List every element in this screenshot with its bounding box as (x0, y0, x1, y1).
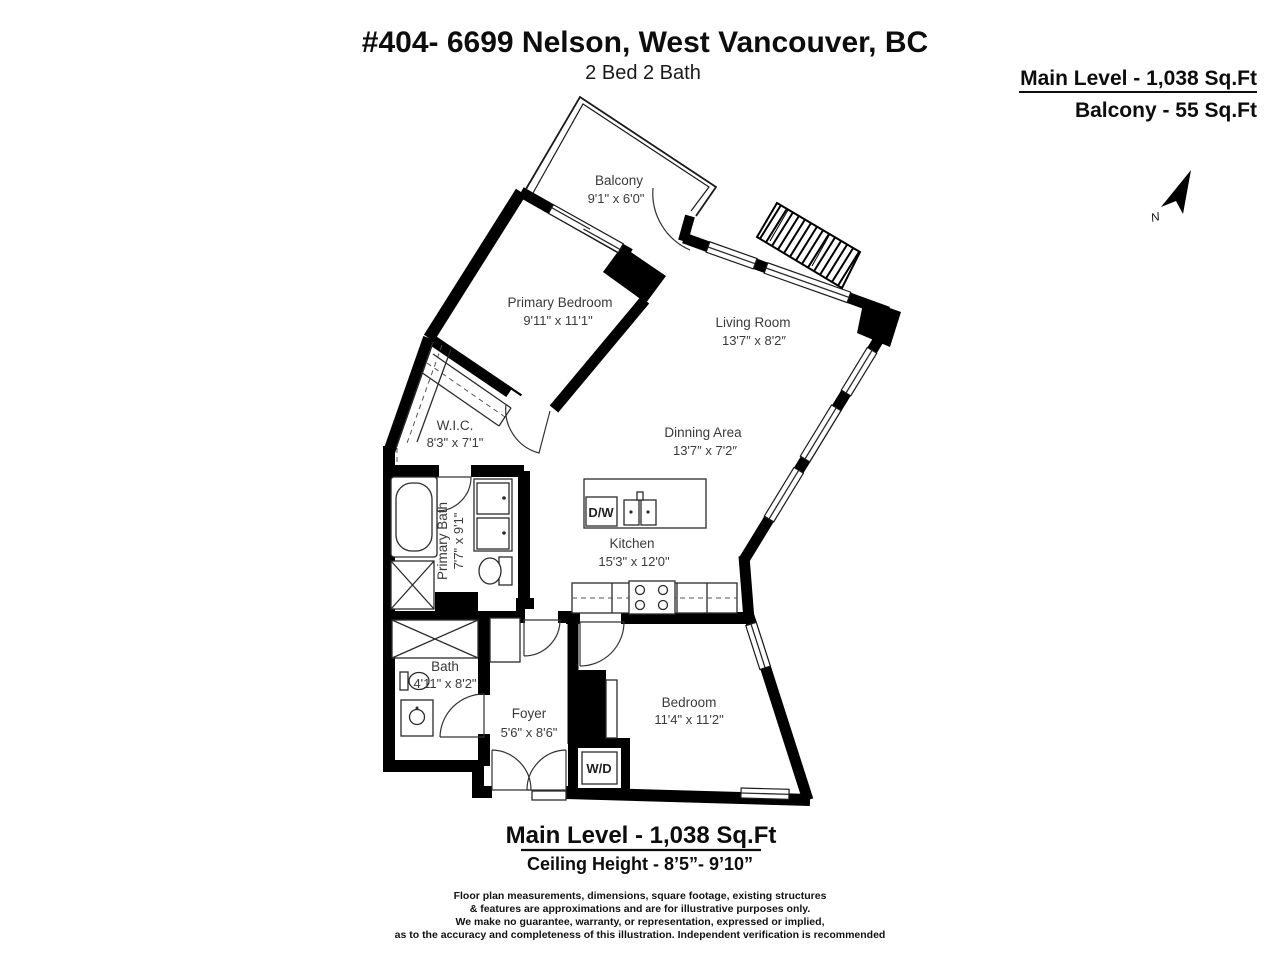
disclaimer-line-2: & features are approximations and are fo… (470, 903, 811, 915)
room-label-living-room: Living Room (715, 315, 790, 330)
room-dims-bedroom: 11'4" x 11'2" (654, 712, 724, 727)
room-label-foyer: Foyer (512, 706, 547, 721)
main-level-area: Main Level - 1,038 Sq.Ft (1020, 67, 1257, 90)
balcony-area: Balcony - 55 Sq.Ft (1075, 99, 1257, 122)
page-subtitle: 2 Bed 2 Bath (585, 62, 701, 84)
room-dims-bath: 4'11" x 8'2" (413, 676, 476, 691)
stove-icon (629, 581, 675, 614)
room-dims-dinning-area: 13'7″ x 7'2″ (673, 443, 737, 458)
disclaimer-line-3: We make no guarantee, warranty, or repre… (456, 916, 825, 928)
room-dims-wic: 8'3" x 7'1" (427, 435, 484, 450)
room-dims-primary-bedroom: 9'11" x 11'1" (523, 313, 593, 328)
faucet-icon (637, 492, 643, 500)
washer-dryer-label: W/D (586, 761, 611, 776)
room-dims-primary-bath: 7'7" x 9'1" (451, 512, 466, 569)
room-dims-foyer: 5'6" x 8'6" (501, 725, 558, 740)
footer-ceiling-height: Ceiling Height - 8’5”- 9’10” (527, 854, 753, 874)
disclaimer-line-4: as to the accuracy and completeness of t… (395, 929, 886, 941)
room-label-kitchen: Kitchen (609, 536, 654, 551)
shower-icon (391, 561, 434, 609)
floorplan-canvas: #404- 6699 Nelson, West Vancouver, BC 2 … (0, 0, 1280, 960)
room-label-primary-bath: Primary Bath (435, 502, 450, 580)
shower-icon (392, 620, 478, 658)
bedroom-closet (606, 680, 617, 738)
footer-main-level: Main Level - 1,038 Sq.Ft (506, 822, 777, 849)
foyer-closet (490, 618, 520, 662)
room-dims-balcony: 9'1" x 6'0" (588, 191, 645, 206)
toilet-icon (479, 557, 512, 585)
dishwasher-label: D/W (588, 505, 614, 520)
room-dims-living-room: 13'7″ x 8'2″ (722, 333, 786, 348)
room-dims-kitchen: 15'3" x 12'0" (598, 554, 670, 569)
room-label-bedroom: Bedroom (662, 695, 717, 710)
floorplan-page: #404- 6699 Nelson, West Vancouver, BC 2 … (0, 0, 1280, 960)
room-label-wic: W.I.C. (437, 418, 474, 433)
page-title: #404- 6699 Nelson, West Vancouver, BC (362, 26, 928, 59)
double-vanity-icon (474, 479, 512, 551)
room-label-balcony: Balcony (595, 173, 643, 188)
room-label-primary-bedroom: Primary Bedroom (507, 295, 612, 310)
disclaimer-line-1: Floor plan measurements, dimensions, squ… (454, 890, 827, 902)
room-label-bath: Bath (431, 659, 459, 674)
sink-icon (401, 700, 433, 736)
primary-bath-label-group: Primary Bath 7'7" x 9'1" (435, 502, 466, 580)
kitchen-island (584, 479, 706, 528)
room-label-dinning-area: Dinning Area (664, 425, 742, 440)
entry-threshold (532, 791, 566, 800)
kitchen-counter (572, 581, 737, 614)
bathtub-icon (391, 477, 437, 557)
